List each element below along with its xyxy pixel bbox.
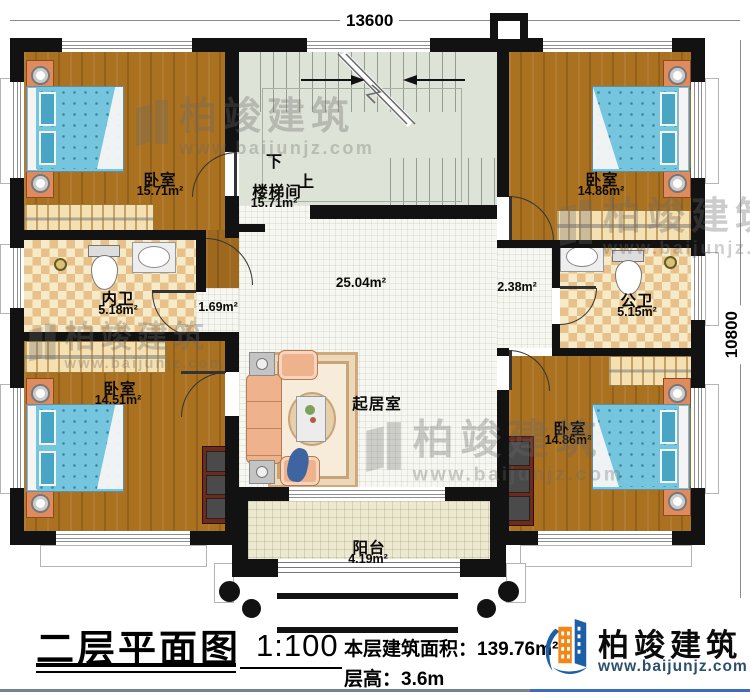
bed-bedroomBL [26, 404, 124, 492]
flower-vase-icon [305, 405, 315, 415]
label-bath-inner-area: 5.18m² [98, 303, 138, 317]
wall-vestibule-top [225, 224, 265, 232]
title-divider-line [240, 667, 342, 669]
sill-right-2 [705, 252, 719, 326]
bed-pillow [660, 449, 677, 483]
label-hall-area: 25.04m² [336, 275, 386, 290]
door-leaf [560, 286, 596, 289]
side-table [249, 460, 275, 484]
entry-stoop [277, 593, 458, 633]
window-left-bedroomBL [10, 388, 24, 488]
table-lamp-icon [256, 358, 268, 370]
nook-floor [497, 248, 552, 348]
label-living-name: 起居室 [352, 392, 402, 414]
lamp-icon [668, 66, 687, 85]
label-stairs-up: 上 [298, 168, 314, 192]
label-bedroomTL-area: 15.71m² [137, 184, 184, 198]
floor-height-row: 层高：3.6m [344, 664, 444, 691]
wall-balcony-foot-right [460, 559, 506, 577]
wall-bath-public-left-lower [552, 324, 560, 348]
bed-pillow [39, 131, 56, 165]
sink-icon [138, 246, 170, 268]
wardrobe-bedroomBL [24, 341, 166, 373]
bed-pillow [660, 131, 677, 165]
bed-bedroomTL [26, 86, 124, 172]
bed-pillow [39, 92, 56, 126]
bed-pillow [39, 410, 56, 445]
window-bottom-bedroomBL [56, 531, 190, 545]
label-bedroomTR-area: 14.86m² [578, 184, 625, 198]
wall-bath-inner-right [196, 240, 206, 292]
nightstand [663, 168, 691, 198]
wall-balcony-foot-left [232, 559, 278, 577]
wall-bath-public-left-upper [552, 248, 560, 288]
dresser-drawer [506, 469, 530, 494]
door-leaf [234, 152, 237, 196]
door-leaf [509, 350, 512, 390]
table-lamp-icon [256, 466, 268, 478]
sofa [246, 374, 282, 464]
title-underline [36, 663, 236, 667]
wardrobe-bedroomTR [556, 210, 693, 242]
sink-icon [566, 246, 598, 267]
label-bedroomBL-area: 14.51m² [95, 393, 142, 407]
window-top-right [543, 38, 672, 52]
dimension-top-label: 13600 [340, 11, 399, 31]
nightstand [663, 486, 691, 516]
wall-bedroomTR-bottom [497, 240, 691, 248]
balcony-post-left-2 [242, 599, 261, 618]
wall-mid-left-divider [10, 332, 239, 341]
coffee-table [296, 396, 326, 442]
armchair [278, 350, 318, 380]
bed-pillow [660, 410, 677, 444]
plan-scale: 1:100 [256, 628, 339, 664]
window-right-bedroomTR [691, 82, 705, 178]
bed-headboard [678, 87, 689, 171]
chimney-flue [490, 13, 528, 47]
door-leaf [152, 290, 196, 293]
label-stairs-down: 下 [266, 148, 282, 172]
bed-bedroomBR [592, 404, 690, 490]
bed-bedroomTR [592, 86, 690, 172]
title-underline [36, 671, 236, 673]
label-bath-public-area: 5.15m² [617, 305, 657, 319]
nightstand [26, 488, 54, 518]
floor-drain-icon [54, 258, 67, 271]
bed-pillow [660, 92, 677, 126]
wall-bedroomTR-left [497, 52, 509, 197]
lamp-icon [31, 384, 50, 403]
lamp-icon [31, 66, 50, 85]
sill-right-1 [705, 78, 719, 184]
floor-area-row: 本层建筑面积：139.76m² [344, 634, 558, 661]
lamp-icon [31, 494, 50, 513]
wall-nook-bottom-nib [497, 348, 509, 356]
wall-bedroomBL-right-upper [225, 341, 239, 372]
balcony-post-left-1 [219, 581, 240, 602]
sill-bottom-left [40, 545, 207, 567]
balcony-post-right-1 [498, 581, 519, 602]
window-top-left [62, 38, 192, 52]
door-leaf [181, 371, 225, 374]
window-left-bath-inner [10, 248, 24, 308]
lamp-icon [31, 174, 50, 193]
window-right-bath-public [691, 256, 705, 320]
bed-pillow [39, 451, 56, 486]
wall-bedroomTL-right-upper [225, 52, 239, 152]
brand-logo-icon [542, 614, 592, 676]
window-right-bedroomBR [691, 388, 705, 488]
wall-stair-bottom [310, 205, 497, 219]
label-nook-area: 2.38m² [497, 280, 537, 294]
label-stairwell-area: 15.71m² [251, 196, 298, 210]
lamp-icon [668, 174, 687, 193]
balcony-post-right-2 [477, 599, 496, 618]
dresser-drawer [506, 441, 530, 466]
lamp-icon [668, 492, 687, 511]
floorplan-canvas: 13600 10800 [0, 0, 750, 692]
dresser-drawer [506, 496, 530, 521]
window-left-bedroomTL [10, 82, 24, 178]
brand-website: www.baijunjz.com [598, 658, 748, 676]
sill-bottom-right [520, 545, 692, 567]
wall-bath-public-bottom [552, 348, 691, 356]
wall-bath-inner-top [10, 230, 206, 240]
floor-drain-icon [664, 256, 677, 269]
lamp-icon [668, 384, 687, 403]
label-balcony-area: 4.19m² [348, 552, 388, 566]
door-leaf [509, 196, 512, 240]
balcony-sliding-door [289, 487, 445, 501]
dimension-right-label: 10800 [722, 305, 742, 364]
window-top-center [307, 38, 430, 52]
side-table [249, 352, 275, 376]
window-bottom-bedroomBR [538, 531, 672, 545]
label-passage-area: 1.69m² [198, 300, 238, 314]
sill-right-3 [705, 384, 719, 494]
nightstand [26, 168, 54, 198]
bed-headboard [678, 405, 689, 489]
label-bedroomBR-area: 14.86m² [545, 433, 592, 447]
